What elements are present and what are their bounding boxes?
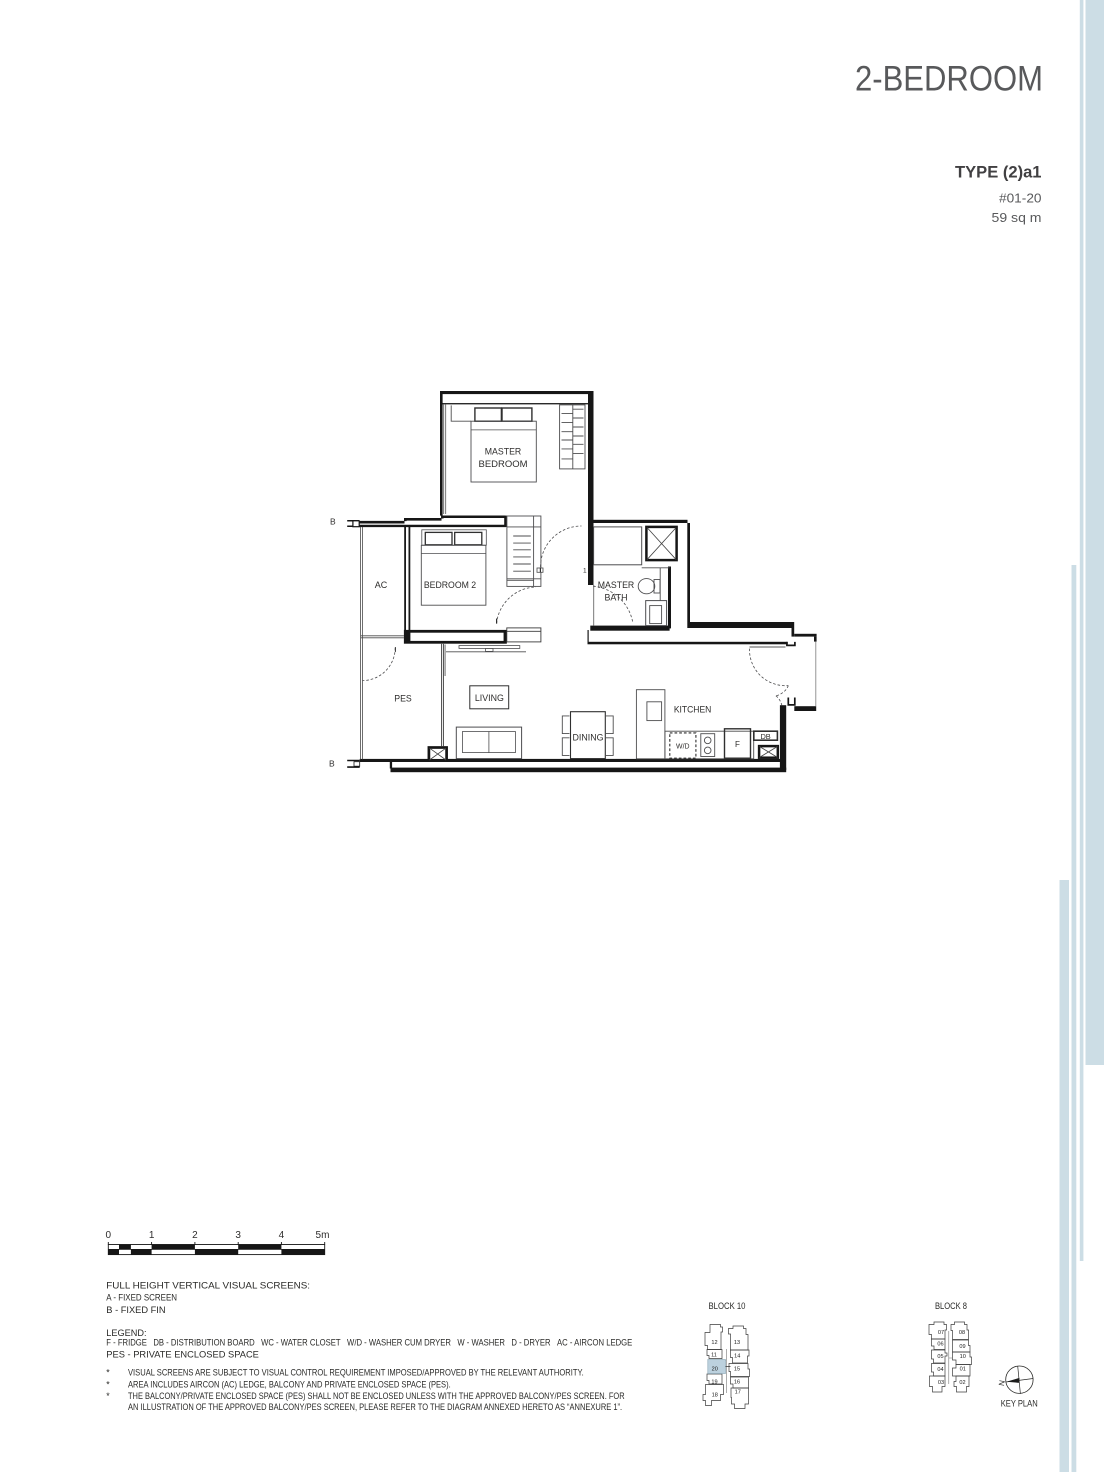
svg-text:*: * [106, 1380, 110, 1390]
svg-text:5m: 5m [316, 1230, 330, 1241]
svg-text:A - FIXED SCREEN: A - FIXED SCREEN [106, 1293, 177, 1303]
svg-text:*: * [106, 1368, 110, 1378]
svg-text:0: 0 [106, 1230, 112, 1241]
svg-text:19: 19 [711, 1379, 717, 1385]
svg-text:AC: AC [375, 580, 388, 590]
svg-text:16: 16 [734, 1379, 740, 1385]
svg-text:18: 18 [712, 1392, 718, 1398]
svg-text:BATH: BATH [605, 593, 628, 603]
svg-text:KEY PLAN: KEY PLAN [1001, 1398, 1038, 1408]
svg-text:BLOCK 10: BLOCK 10 [709, 1301, 746, 1311]
svg-text:DINING: DINING [573, 732, 604, 742]
svg-text:2-BEDROOM: 2-BEDROOM [855, 60, 1043, 99]
svg-text:PES - PRIVATE ENCLOSED SPACE: PES - PRIVATE ENCLOSED SPACE [106, 1350, 259, 1360]
svg-text:THE BALCONY/PRIVATE ENCLOSED S: THE BALCONY/PRIVATE ENCLOSED SPACE (PES)… [128, 1391, 625, 1401]
svg-text:VISUAL SCREENS ARE SUBJECT TO: VISUAL SCREENS ARE SUBJECT TO VISUAL CON… [128, 1368, 584, 1378]
svg-text:4: 4 [279, 1230, 285, 1241]
svg-text:11: 11 [711, 1353, 717, 1359]
svg-text:B: B [329, 759, 335, 769]
svg-text:1: 1 [149, 1230, 155, 1241]
svg-text:20: 20 [712, 1366, 718, 1372]
svg-text:03: 03 [938, 1380, 944, 1386]
svg-text:KITCHEN: KITCHEN [674, 704, 712, 714]
svg-text:BEDROOM 2: BEDROOM 2 [424, 580, 476, 590]
svg-text:07: 07 [938, 1330, 944, 1336]
svg-text:BLOCK 8: BLOCK 8 [935, 1301, 967, 1311]
svg-text:13: 13 [734, 1340, 740, 1346]
svg-text:02: 02 [959, 1380, 965, 1386]
svg-text:LIVING: LIVING [475, 693, 504, 703]
svg-text:B - FIXED FIN: B - FIXED FIN [106, 1305, 165, 1315]
svg-text:W/D: W/D [676, 742, 690, 751]
svg-text:10: 10 [960, 1354, 966, 1360]
svg-text:AREA INCLUDES AIRCON (AC) LEDG: AREA INCLUDES AIRCON (AC) LEDGE, BALCONY… [128, 1380, 451, 1390]
svg-text:PES: PES [394, 694, 412, 704]
svg-text:08: 08 [959, 1330, 965, 1336]
svg-text:06: 06 [937, 1342, 943, 1348]
svg-text:TYPE (2)a1: TYPE (2)a1 [955, 163, 1042, 182]
svg-text:*: * [106, 1391, 110, 1401]
svg-text:05: 05 [937, 1354, 943, 1360]
svg-text:04: 04 [937, 1367, 943, 1373]
svg-text:59 sq m: 59 sq m [992, 210, 1042, 225]
svg-text:2: 2 [192, 1230, 198, 1241]
svg-text:BEDROOM: BEDROOM [479, 459, 528, 469]
svg-text:01: 01 [960, 1367, 966, 1373]
svg-text:B: B [330, 517, 336, 527]
svg-text:17: 17 [735, 1389, 741, 1395]
svg-text:F - FRIDGE DB - DISTRIBUTION: F - FRIDGE DB - DISTRIBUTION BOARD WC - … [106, 1338, 632, 1348]
svg-text:09: 09 [959, 1344, 965, 1350]
svg-text:1: 1 [583, 568, 587, 575]
svg-text:AN ILLUSTRATION OF THE APPROVE: AN ILLUSTRATION OF THE APPROVED BALCONY/… [128, 1402, 622, 1412]
svg-text:14: 14 [734, 1353, 740, 1359]
svg-text:MASTER: MASTER [485, 447, 522, 457]
svg-text:3: 3 [235, 1230, 241, 1241]
svg-text:DB: DB [760, 732, 770, 741]
svg-text:12: 12 [711, 1340, 717, 1346]
svg-text:F: F [735, 740, 740, 749]
svg-text:LEGEND:: LEGEND: [106, 1328, 146, 1338]
svg-text:#01-20: #01-20 [999, 191, 1042, 206]
svg-text:FULL HEIGHT VERTICAL VISUAL SC: FULL HEIGHT VERTICAL VISUAL SCREENS: [106, 1281, 310, 1291]
svg-text:15: 15 [734, 1366, 740, 1372]
